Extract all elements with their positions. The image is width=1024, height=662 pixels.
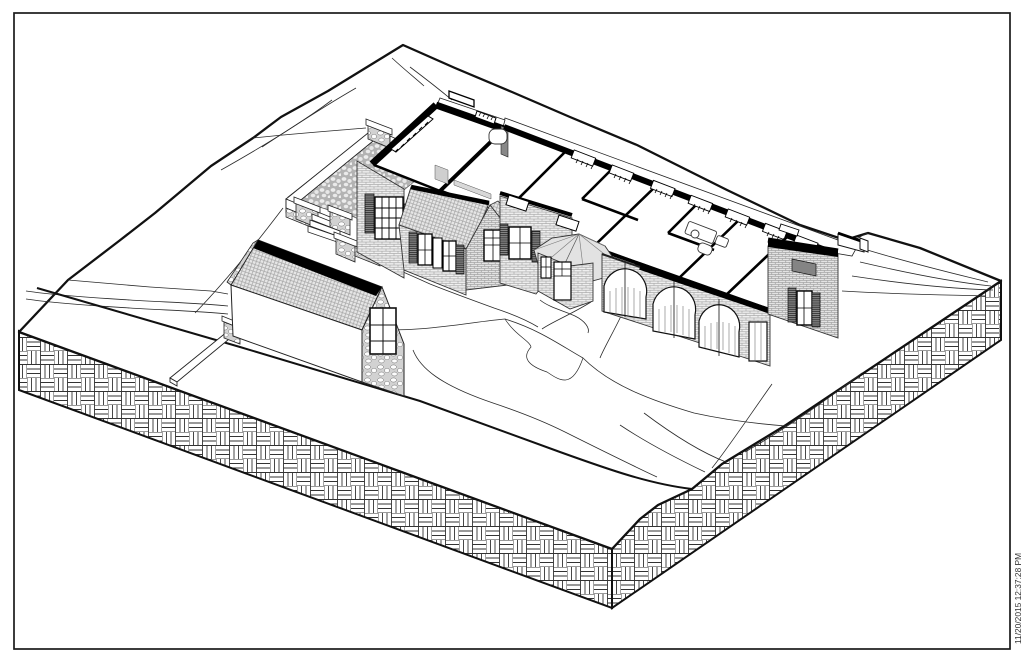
svg-text:11/20/2015 12:37:28 PM: 11/20/2015 12:37:28 PM — [1013, 553, 1023, 644]
